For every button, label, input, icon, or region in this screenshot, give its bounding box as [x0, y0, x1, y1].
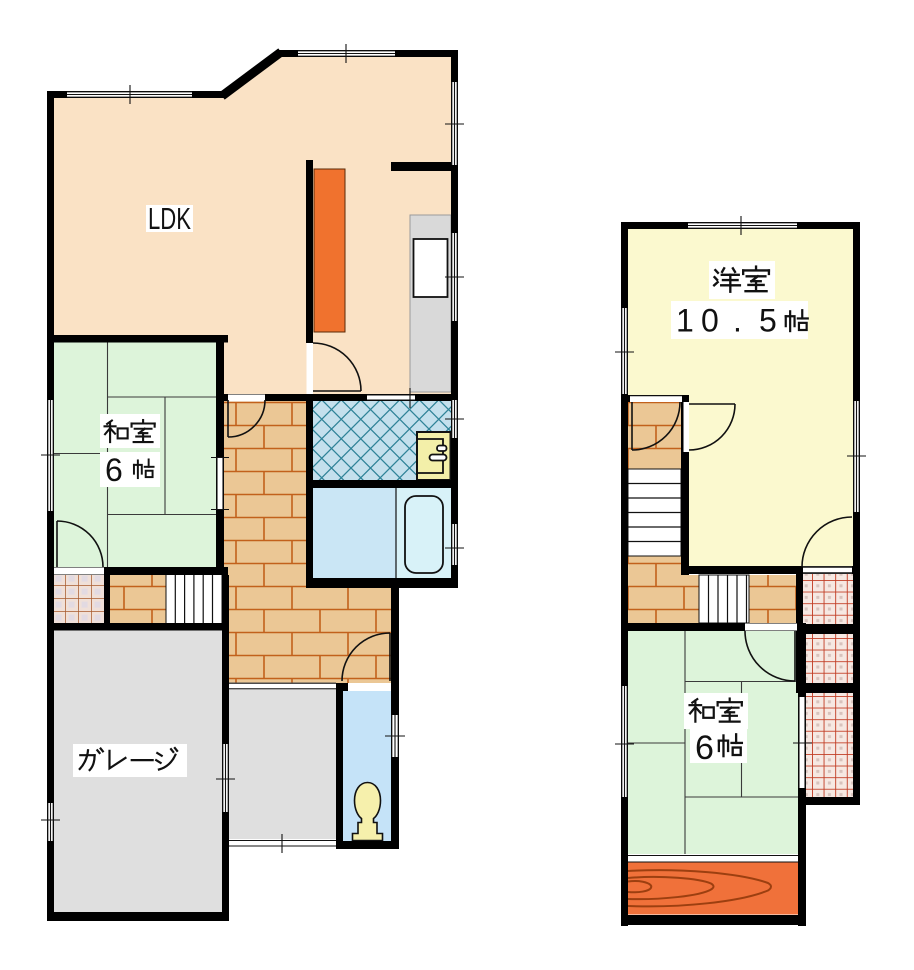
svg-text:LDK: LDK	[148, 201, 191, 236]
svg-text:6: 6	[695, 729, 714, 767]
svg-text:0: 0	[701, 303, 719, 339]
svg-text:.: .	[733, 303, 742, 339]
svg-text:5: 5	[759, 303, 777, 339]
svg-text:1: 1	[676, 303, 694, 339]
svg-text:6: 6	[105, 452, 123, 488]
